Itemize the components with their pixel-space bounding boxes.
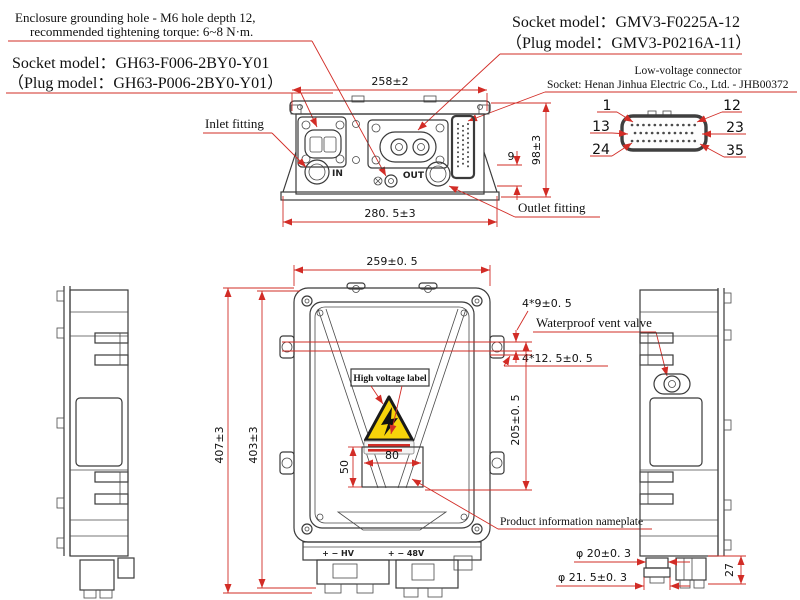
- nameplate-label: Product information nameplate: [500, 516, 643, 528]
- grounding-note-line1: Enclosure grounding hole - M6 hole depth…: [15, 10, 255, 25]
- front-view: + − HV + − 48V: [280, 283, 504, 597]
- outlet-fitting-label: Outlet fitting: [518, 200, 586, 215]
- outlet-port: OUT: [403, 162, 450, 186]
- gmv3-socket-model: Socket model：GMV3-F0225A-12: [512, 14, 740, 31]
- lv-connector-socket: Socket: Henan Jinhua Electric Co., Ltd. …: [547, 79, 789, 91]
- bottom-fitting: [644, 558, 670, 583]
- gmv3-plug-model: （Plug model：GMV3-P0216A-11）: [506, 34, 751, 52]
- right-side-view: [640, 288, 731, 588]
- callout-nameplate: Product information nameplate: [412, 479, 652, 529]
- dim-nameplate-height: 50: [338, 460, 351, 474]
- grounding-screw: [374, 175, 397, 187]
- inlet-fitting-label: Inlet fitting: [205, 116, 264, 131]
- dim-top-base: 9: [508, 150, 515, 163]
- waterproof-vent-valve: [654, 374, 690, 394]
- lv48-connector-bottom: [396, 560, 458, 597]
- dim-hole-pitch-b: 4*12. 5±0. 5: [522, 352, 593, 365]
- high-voltage-label-text: High voltage label: [353, 374, 427, 384]
- inlet-port: IN: [305, 160, 343, 184]
- high-voltage-warning-label: [364, 397, 414, 454]
- vent-valve-label: Waterproof vent valve: [536, 315, 652, 330]
- port-label-in: IN: [332, 169, 343, 179]
- top-view-dimensions: 258±2 280. 5±3 98±3 9: [283, 75, 551, 227]
- gmv3-connector: [368, 120, 448, 168]
- callout-inlet-fitting: Inlet fitting: [203, 116, 306, 167]
- lv-connector-title: Low-voltage connector: [635, 65, 742, 77]
- gh63-socket-model: Socket model：GH63-F006-2BY0-Y01: [12, 55, 269, 72]
- hv-connector-bottom: [317, 560, 389, 593]
- lv-connector-pin-diagram: 1 12 13 23 24 35: [590, 98, 746, 159]
- dim-front-height-outer: 407±3: [213, 426, 226, 463]
- top-view: IN OUT: [281, 96, 499, 200]
- low-voltage-connector-top: [452, 116, 474, 178]
- dim-connector-height: 27: [723, 563, 736, 577]
- port-label-48v: + − 48V: [388, 549, 425, 558]
- gh63-connector: [298, 117, 346, 167]
- callout-gh63-socket: Socket model：GH63-F006-2BY0-Y01 （Plug mo…: [6, 55, 333, 127]
- callout-outlet-fitting: Outlet fitting: [449, 186, 600, 217]
- grounding-note-line2: recommended tightening torque: 6~8 N·m.: [30, 24, 253, 39]
- left-side-view: [57, 286, 134, 598]
- callout-vent-valve: Waterproof vent valve: [533, 315, 667, 376]
- dim-hole-pitch-a: 4*9±0. 5: [522, 297, 572, 310]
- dim-nameplate-width: 80: [385, 449, 399, 462]
- technical-drawing-page: Enclosure grounding hole - M6 hole depth…: [0, 0, 800, 600]
- bottom-connector: [676, 558, 706, 588]
- dim-fitting-dia-large: φ 21. 5±0. 3: [558, 571, 627, 584]
- gh63-plug-model: （Plug model：GH63-P006-2BY0-Y01）: [8, 74, 283, 92]
- dim-top-height: 98±3: [530, 135, 543, 165]
- port-label-hv: + − HV: [322, 549, 355, 558]
- dim-front-width: 259±0. 5: [366, 255, 417, 268]
- dim-top-width: 258±2: [371, 75, 408, 88]
- dim-front-right-span: 205±0. 5: [509, 394, 522, 445]
- dim-top-overall-width: 280. 5±3: [364, 207, 415, 220]
- engineering-drawing: Enclosure grounding hole - M6 hole depth…: [0, 0, 800, 600]
- dim-front-height-inner: 403±3: [247, 426, 260, 463]
- dim-fitting-dia-small: φ 20±0. 3: [576, 547, 631, 560]
- port-label-out: OUT: [403, 171, 425, 181]
- callout-low-voltage-connector: Low-voltage connector Socket: Henan Jinh…: [468, 65, 797, 121]
